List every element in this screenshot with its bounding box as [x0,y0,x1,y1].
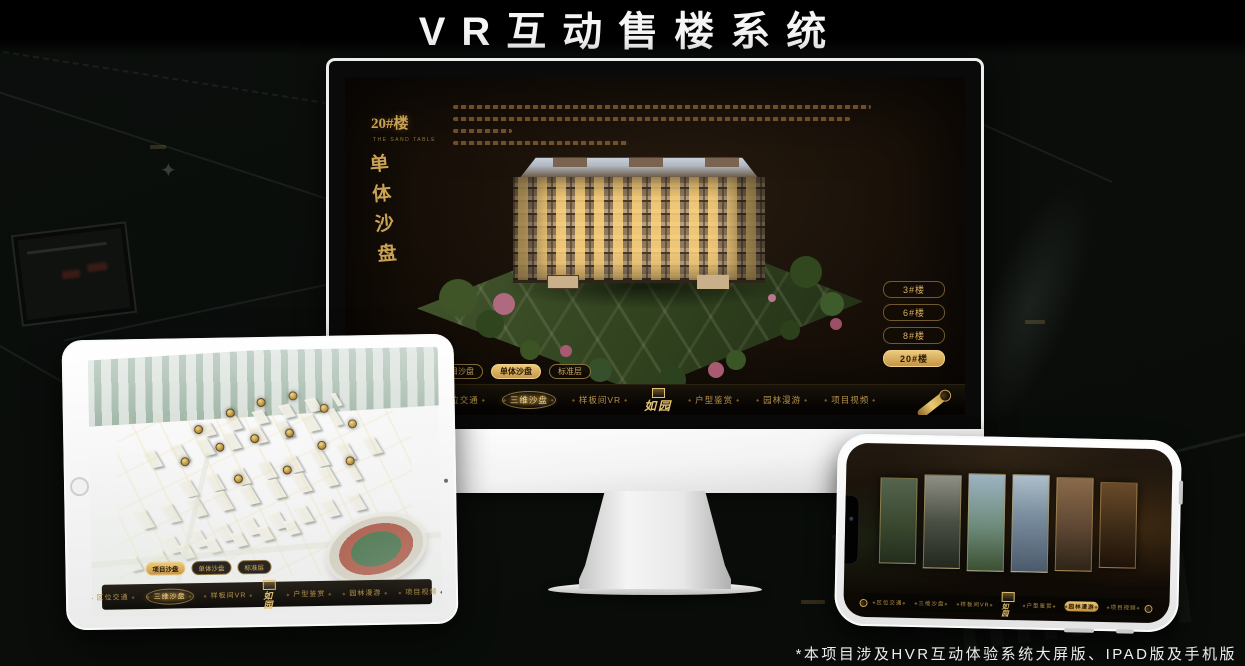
scroll-menu-icon[interactable] [916,390,950,415]
nav-item[interactable]: 户型鉴赏 [688,392,740,408]
scene-panel[interactable] [1011,474,1050,573]
scene-panel[interactable] [923,474,962,569]
monitor-stand [579,491,731,589]
nav-item[interactable]: 项目视频 [1106,602,1140,613]
building-number-title: 20#楼 [371,95,436,135]
home-button[interactable] [70,477,89,496]
volume-button[interactable] [1064,628,1094,633]
scroll-menu-icon[interactable] [1147,606,1152,610]
nav-item[interactable]: 户型鉴赏 [1022,600,1056,611]
promo-stage: ✦ VR互动售楼系统 20#楼 THE SAND TABLE 单体沙盘 [0,0,1245,666]
nav-item[interactable]: 样板间VR [203,588,253,603]
ruyuan-logo: 如园 [263,579,277,609]
nav-item[interactable]: 样板间VR [572,392,628,408]
nav-item[interactable]: 园林漫游 [1064,601,1098,612]
vertical-title-char: 单 [368,148,389,177]
floor-button[interactable]: 3#楼 [883,281,945,298]
scroll-menu-icon[interactable] [862,600,867,604]
building-facade-windows [513,177,765,283]
map-road-line [0,85,380,217]
nav-item[interactable]: 三维沙盘 [914,598,948,609]
tablet-device: 项目沙盘单体沙盘标准层 区位交通三维沙盘样板间VR 如园 户型鉴赏园林漫游项目视… [61,334,458,631]
building-number: 20 [371,116,386,132]
building-model-scene [409,135,879,401]
ruyuan-logo: 如园 [644,388,672,412]
camera-dot-icon [444,479,448,483]
compass-star-icon: ✦ [160,158,177,183]
subtab-button[interactable]: 单体沙盘 [491,364,541,379]
nav-item[interactable]: 三维沙盘 [145,588,193,605]
page-title: VR互动售楼系统 [403,0,843,57]
floor-button[interactable]: 8#楼 [883,327,945,344]
nav-item[interactable]: 三维沙盘 [502,391,556,409]
nav-item[interactable]: 样板间VR [956,598,993,609]
nav-item[interactable]: 区位交通 [872,597,906,608]
nav-item[interactable]: 项目视频 [824,392,876,408]
camera-notch [844,495,859,565]
mist-overlay [88,347,443,617]
map-gold-label [1025,320,1045,324]
vertical-title-char: 体 [371,178,392,207]
logo-text: 如园 [644,400,672,412]
building-number-suffix: #楼 [386,116,409,132]
subtab-button[interactable]: 项目沙盘 [145,561,185,576]
floor-button-group: 3#楼6#楼8#楼20#楼 [883,281,945,367]
building-roof [513,151,765,177]
nav-item[interactable]: 户型鉴赏 [286,586,332,601]
green-trees [439,279,477,317]
phone-screen: 区位交通三维沙盘样板间VR 如园 户型鉴赏园林漫游项目视频 [843,443,1173,624]
vertical-title-char: 盘 [376,238,397,267]
nav-item[interactable]: 园林漫游 [756,392,808,408]
power-button[interactable] [1179,481,1184,505]
scene-gallery [879,471,1138,574]
footnote-caption: *本项目涉及HVR互动体验系统大屏版、IPAD版及手机版 [796,643,1237,664]
header: VR互动售楼系统 [0,0,1245,56]
floor-button[interactable]: 20#楼 [883,350,945,367]
sandbox-subtabs: 项目沙盘单体沙盘标准层 [145,560,271,576]
scene-panel[interactable] [1055,477,1094,572]
nav-item[interactable]: 园林漫游 [342,585,388,600]
ruyuan-logo: 如园 [1001,591,1015,617]
subtab-button[interactable]: 标准层 [549,364,591,379]
tablet-screen: 项目沙盘单体沙盘标准层 区位交通三维沙盘样板间VR 如园 户型鉴赏园林漫游项目视… [88,347,443,617]
residential-building-model[interactable] [513,151,765,283]
logo-seal-icon [263,579,276,589]
logo-text: 如园 [1001,603,1014,617]
phone-device: 区位交通三维沙盘样板间VR 如园 户型鉴赏园林漫游项目视频 [834,433,1182,632]
subtab-button[interactable]: 单体沙盘 [191,561,231,576]
nav-item[interactable]: 项目视频 [398,584,442,599]
floor-button[interactable]: 6#楼 [883,304,945,321]
subtab-button[interactable]: 标准层 [237,560,271,575]
logo-seal-icon [1002,591,1015,601]
scene-panel[interactable] [967,473,1006,572]
section-title-vertical: 单体沙盘 [366,148,400,267]
scene-panel[interactable] [1099,481,1138,568]
nav-item[interactable]: 区位交通 [90,590,136,605]
logo-seal-icon [652,388,665,398]
vertical-title-char: 沙 [374,208,395,237]
logo-text: 如园 [263,591,276,609]
scene-panel[interactable] [879,477,918,564]
sandbox-subtabs: 项目沙盘单体沙盘标准层 [433,364,591,379]
map-gold-label [150,145,166,149]
camera-dot-icon [849,517,853,521]
volume-button[interactable] [1116,629,1134,633]
map-gold-label [801,600,825,604]
award-plaque [11,221,137,326]
